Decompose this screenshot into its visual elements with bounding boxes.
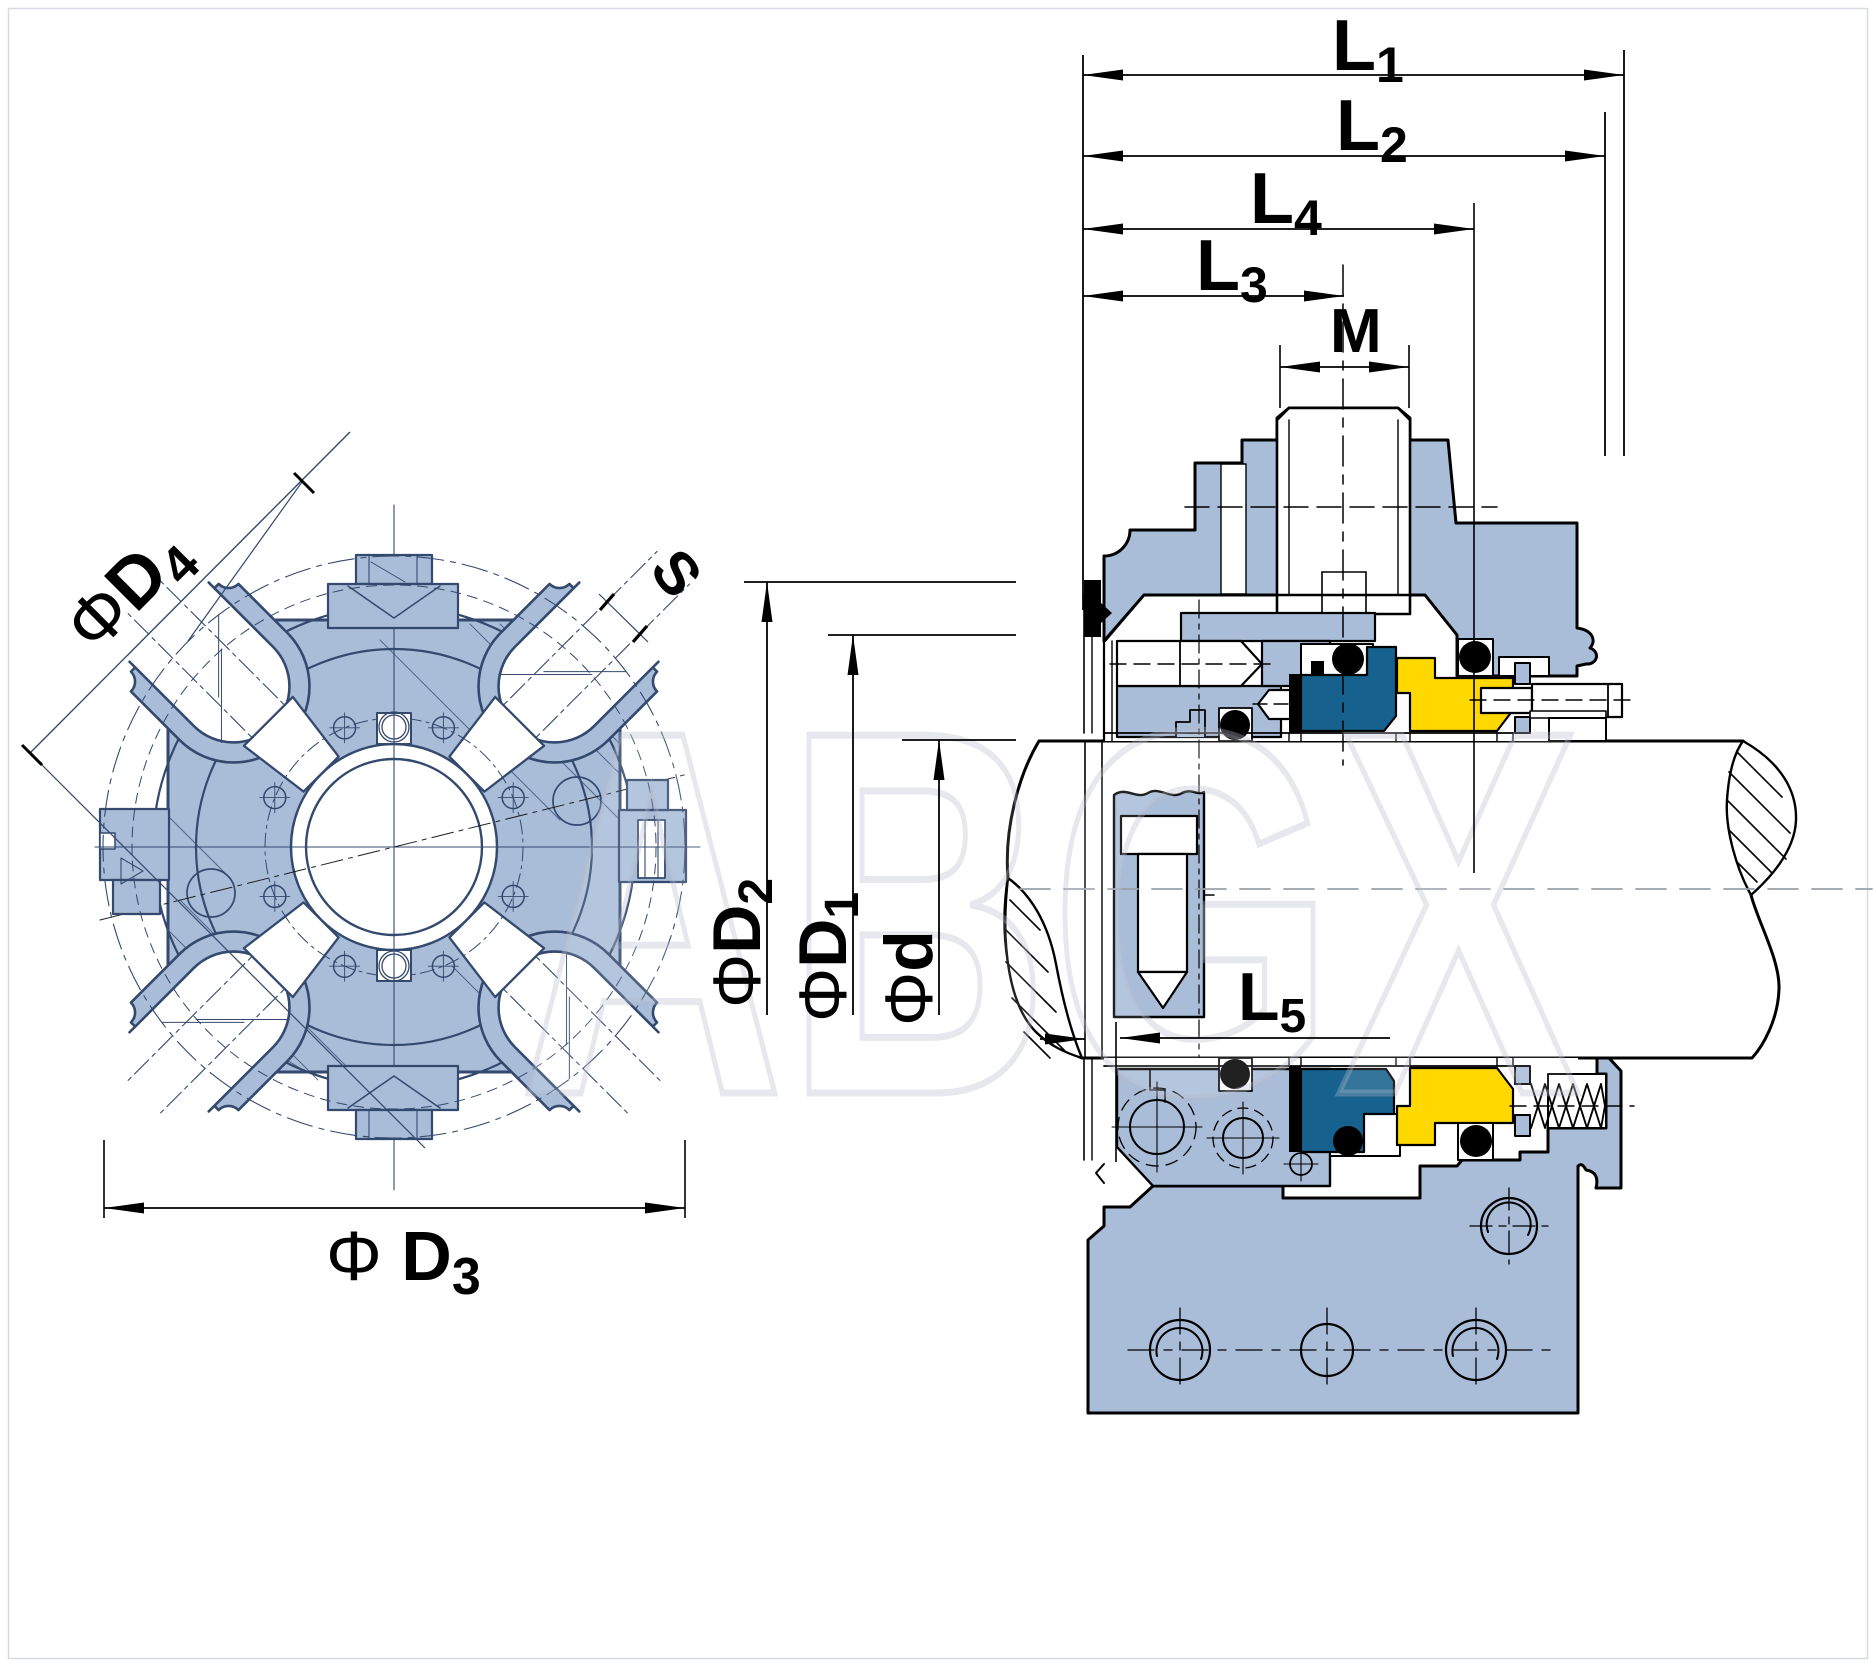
svg-text:M: M [1330, 297, 1382, 366]
svg-text:Φd: Φd [871, 930, 947, 1026]
svg-text:ABGX: ABGX [519, 623, 1583, 1204]
